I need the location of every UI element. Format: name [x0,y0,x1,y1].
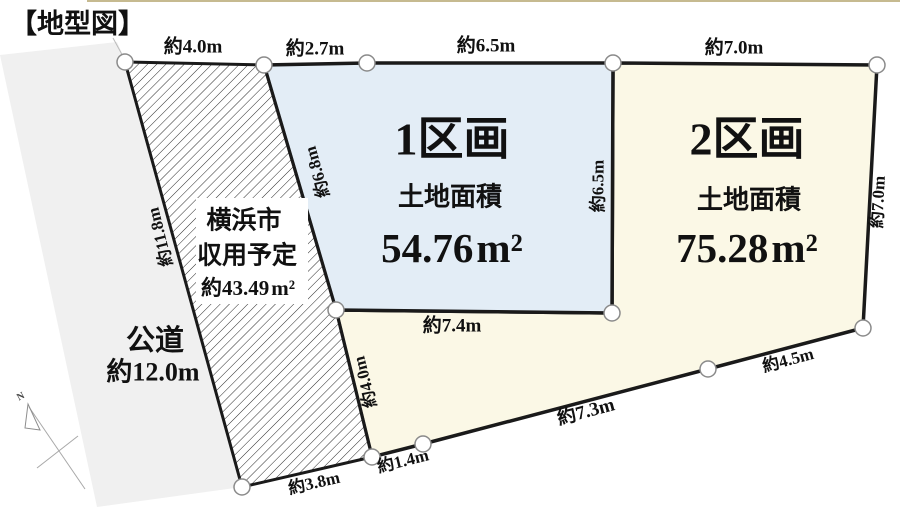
dim-p1-top: 約6.5m [457,34,516,57]
parcel1-area-value: 54.76m² [381,225,523,271]
top-rule [87,0,900,2]
dim-p2-top: 約7.0m [705,36,764,59]
vertex-marker [869,57,885,73]
parcel2-area-unit: m² [771,225,817,271]
expropriation-plan: 収用予定 [197,241,297,270]
dim-p1-top-left: 約2.7m [286,37,345,60]
compass-arrowhead [25,404,40,430]
vertex-marker [234,479,250,495]
dim-hatch-top: 約4.0m [164,35,223,58]
figure-title: 【地型図】 [10,9,145,39]
dim-p1-bottom: 約7.4m [423,314,482,337]
vertex-marker [605,55,621,71]
parcel2-area-value: 75.28m² [676,225,818,271]
land-plot-diagram: 【地型図】 約4.0m 約2.7m 約6.5m 約7.0m 約11.8m 約6.… [0,0,900,519]
parcel1-area-number: 54.76 [381,225,473,271]
parcel1-area-caption: 土地面積 [398,183,502,212]
north-compass: N [15,390,85,489]
road-label: 公道 [126,324,184,357]
road-width: 約12.0m [106,357,200,387]
expropriation-area-number: 約43.49 [201,276,269,300]
parcel2-area-number: 75.28 [676,225,768,271]
parcel1-name: 1区画 [395,114,510,165]
vertex-marker [328,302,344,318]
expropriation-city: 横浜市 [206,206,281,235]
vertex-marker [359,55,375,71]
vertex-marker [700,361,716,377]
land-shape-figure: 【地型図】 約4.0m 約2.7m 約6.5m 約7.0m 約11.8m 約6.… [0,0,900,519]
parcel2-area-caption: 土地面積 [697,186,801,215]
parcel1-area-unit: m² [476,225,522,271]
compass-north-label: N [15,390,27,403]
compass-needle-line [29,407,85,489]
parcel2-name: 2区画 [690,114,805,165]
compass-cross-line [37,436,78,468]
dim-p2-right: 約7.0m [866,175,889,228]
vertex-marker [855,320,871,336]
expropriation-area-value: 約43.49m² [201,276,295,300]
expropriation-area-unit: m² [271,276,295,300]
vertex-marker [117,54,133,70]
dim-p1-right: 約6.5m [588,160,608,212]
vertex-marker [604,305,620,321]
vertex-marker [256,57,272,73]
